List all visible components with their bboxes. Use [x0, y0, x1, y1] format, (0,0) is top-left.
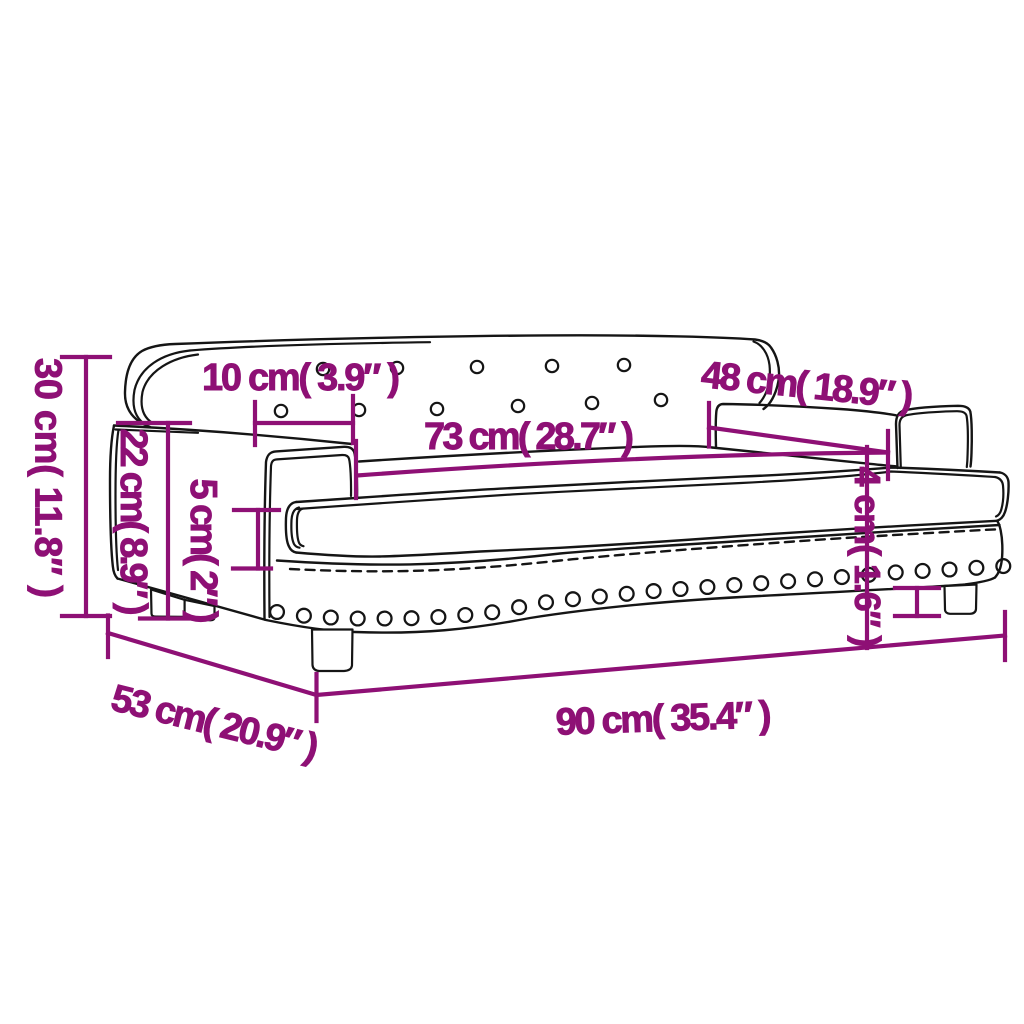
- svg-text:4 cm( 1.6″ ): 4 cm( 1.6″ ): [847, 467, 888, 648]
- svg-text:10 cm( 3.9″ ): 10 cm( 3.9″ ): [202, 357, 400, 399]
- svg-text:5 cm( 2″ ): 5 cm( 2″ ): [182, 479, 224, 624]
- svg-text:90 cm( 35.4″ ): 90 cm( 35.4″ ): [555, 694, 772, 744]
- svg-text:30 cm( 11.8″ ): 30 cm( 11.8″ ): [27, 358, 69, 598]
- svg-text:22 cm( 8.9″ ): 22 cm( 8.9″ ): [112, 429, 154, 616]
- svg-text:73 cm( 28.7″ ): 73 cm( 28.7″ ): [424, 416, 634, 458]
